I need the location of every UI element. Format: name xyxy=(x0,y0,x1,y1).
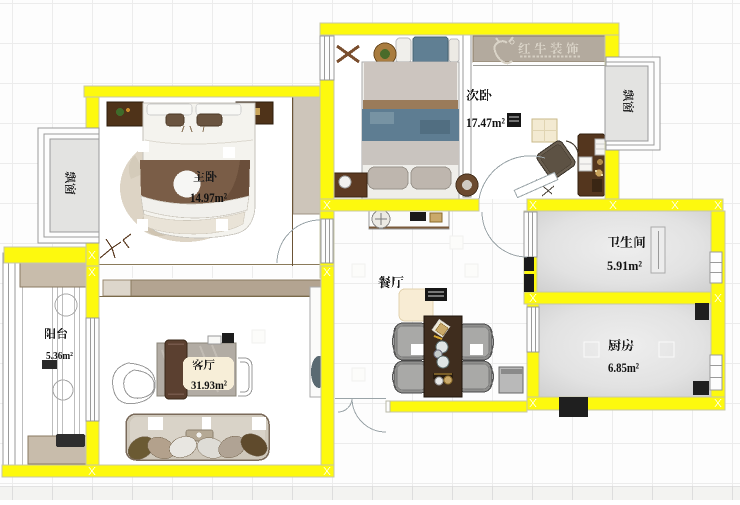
svg-text:5.91m²: 5.91m² xyxy=(607,258,642,273)
svg-text:31.93m²: 31.93m² xyxy=(191,378,227,392)
svg-text:5.36m²: 5.36m² xyxy=(46,350,74,362)
svg-text:6.85m²: 6.85m² xyxy=(608,360,639,375)
svg-text:17.47m²: 17.47m² xyxy=(466,115,505,130)
svg-text:14.97m²: 14.97m² xyxy=(190,190,227,205)
